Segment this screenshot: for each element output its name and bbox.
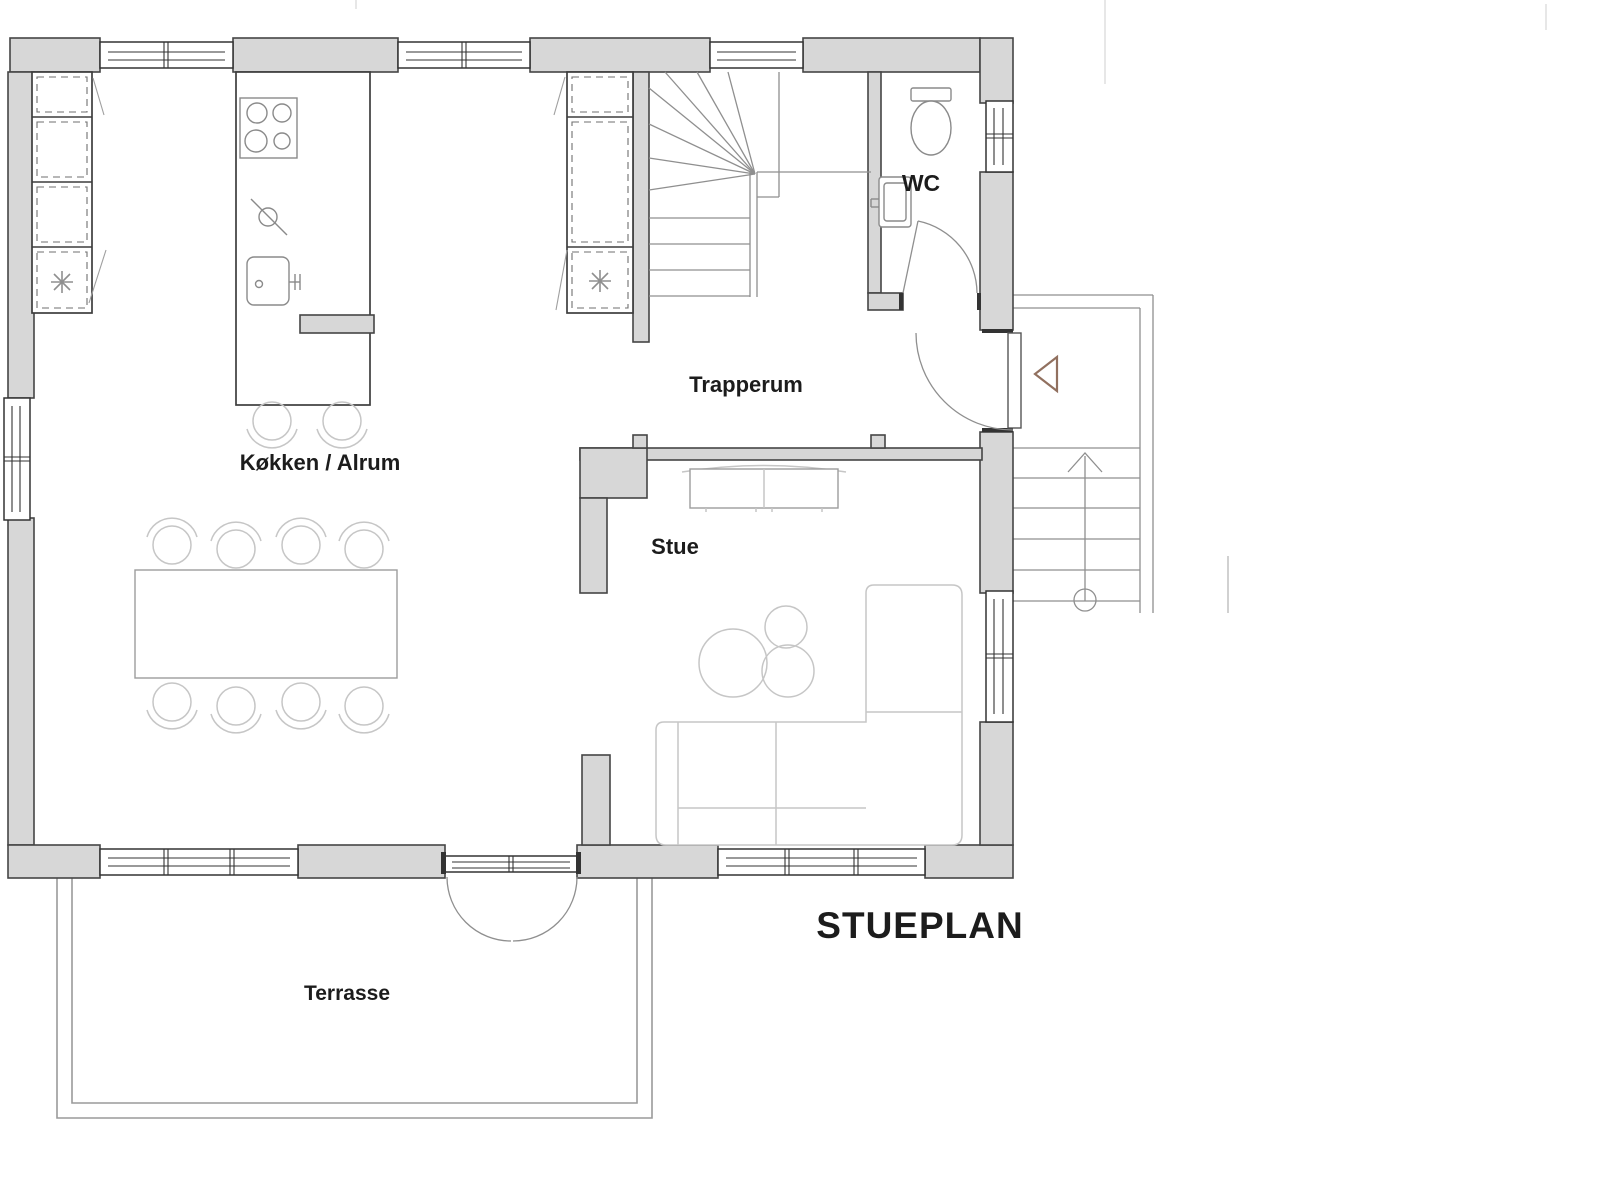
- window: [4, 398, 30, 520]
- stool: [247, 402, 297, 448]
- stove-icon: [240, 98, 297, 158]
- wall-segment: [8, 72, 34, 398]
- window: [100, 849, 298, 875]
- wall-segment: [925, 845, 1013, 878]
- window: [718, 849, 925, 875]
- wall-stub: [633, 435, 647, 448]
- bar-stools: [247, 402, 367, 448]
- tv-bench: [682, 466, 846, 513]
- toilet-icon: [911, 88, 951, 155]
- wall-segment: [530, 38, 710, 72]
- chair: [276, 518, 326, 564]
- wall-stue-corner: [580, 448, 647, 498]
- entry-arrow-icon: [1035, 357, 1057, 391]
- wall-segment: [8, 845, 100, 878]
- wall-segment: [8, 518, 34, 845]
- sofa: [656, 585, 962, 845]
- chair: [147, 518, 197, 564]
- floor-plan: Køkken / Alrum Trapperum Stue WC Terrass…: [0, 0, 1600, 1200]
- chair: [339, 687, 389, 733]
- stairs-up-arrow-icon: [1068, 453, 1102, 611]
- wall-segment: [980, 172, 1013, 330]
- wall-wc-bottom: [868, 293, 903, 310]
- chair: [339, 522, 389, 568]
- coffee-tables: [699, 606, 814, 697]
- kitchen-island: [236, 72, 374, 405]
- dining-set: [135, 518, 397, 733]
- chair: [276, 683, 326, 729]
- window: [710, 42, 803, 68]
- wall-segment: [10, 38, 100, 72]
- wall-segment: [233, 38, 398, 72]
- wc-door: [899, 221, 981, 310]
- wall-stue-lower-left: [582, 755, 610, 845]
- stool: [317, 402, 367, 448]
- wall-stub: [871, 435, 885, 448]
- room-label-wc: WC: [902, 170, 940, 196]
- tall-cabinet-left: [32, 72, 106, 313]
- room-label-living: Stue: [651, 534, 699, 559]
- wall-segment: [980, 722, 1013, 845]
- room-label-stairwell: Trapperum: [689, 372, 803, 397]
- chair: [211, 687, 261, 733]
- french-door: [441, 852, 581, 941]
- tall-cabinet-right: [554, 72, 633, 313]
- exterior-stairs: [1013, 295, 1228, 613]
- wc-fixtures: [871, 88, 951, 227]
- wall-segment: [980, 432, 1013, 593]
- island-bench: [300, 315, 374, 333]
- chair: [147, 683, 197, 729]
- wall-stue-left: [580, 498, 607, 593]
- room-label-kitchen: Køkken / Alrum: [240, 450, 401, 475]
- dining-table: [135, 570, 397, 678]
- window: [398, 42, 530, 68]
- room-label-terrace: Terrasse: [304, 982, 390, 1005]
- window: [986, 101, 1013, 172]
- wall-kitchen-stair: [633, 72, 649, 342]
- wall-segment: [298, 845, 445, 878]
- plan-title: STUEPLAN: [816, 905, 1023, 946]
- interior-stairs: [649, 72, 871, 297]
- window: [986, 591, 1013, 722]
- kitchen: [32, 72, 633, 448]
- chair: [211, 522, 261, 568]
- fridge-icon: [51, 271, 73, 293]
- wall-segment: [577, 845, 718, 878]
- entry-door: [916, 329, 1021, 432]
- wall-segment: [803, 38, 980, 72]
- freezer-icon: [589, 270, 611, 292]
- window: [100, 42, 233, 68]
- living-room-furniture: [656, 466, 962, 846]
- wall-segment: [980, 38, 1013, 103]
